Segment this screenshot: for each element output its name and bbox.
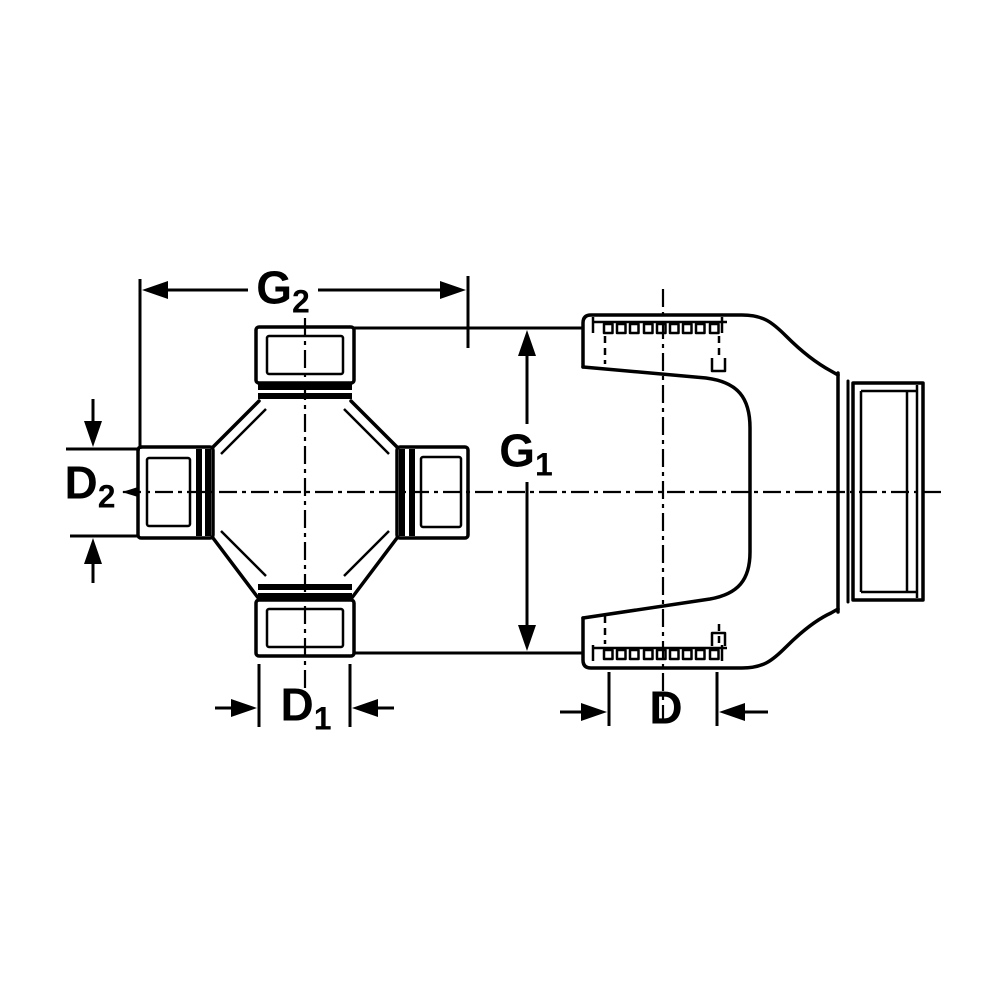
dim-label-d1-sub: 1 xyxy=(314,701,332,737)
dim-label-g1-main: G xyxy=(499,425,535,477)
d1-arrowhead-left xyxy=(352,699,378,717)
dim-label-d: D xyxy=(649,685,682,738)
g2-arrowhead-left xyxy=(142,281,168,299)
d-arrowhead-right xyxy=(581,703,607,721)
bottom-serration-teeth xyxy=(604,650,719,659)
dim-label-g2: G2 xyxy=(256,265,310,318)
top-bore-hook xyxy=(712,358,725,371)
d-arrowhead-left xyxy=(719,703,745,721)
body-inner-chamfer-bottom-right xyxy=(344,531,389,576)
d1-arrowhead-right xyxy=(231,699,257,717)
dim-label-d1: D1 xyxy=(280,682,331,735)
body-inner-chamfer-bottom-left xyxy=(221,531,266,576)
ujoint-technical-drawing: G2 G1 D2 D1 D xyxy=(0,0,1000,1000)
ujoint-drawing-svg xyxy=(0,0,1000,1000)
dim-label-g2-main: G xyxy=(256,262,292,314)
dim-label-d-main: D xyxy=(649,682,682,734)
dim-label-g2-sub: 2 xyxy=(292,284,310,320)
yoke-top-ear-serrations xyxy=(593,317,727,371)
d2-arrowhead-down xyxy=(84,421,102,447)
g2-arrowhead-right xyxy=(440,281,466,299)
top-serration-teeth xyxy=(604,324,719,333)
g1-arrowhead-up xyxy=(518,330,536,356)
dim-label-g1: G1 xyxy=(499,428,553,481)
dim-label-d1-main: D xyxy=(280,679,313,731)
dim-label-d2-sub: 2 xyxy=(98,479,116,515)
d2-arrowhead-up xyxy=(84,538,102,564)
g1-arrowhead-down xyxy=(518,625,536,651)
yoke-bottom-ear-serrations xyxy=(593,616,727,661)
centerline-left-arrowhead xyxy=(122,487,138,497)
dim-label-d2-main: D xyxy=(64,457,97,509)
dim-label-d2: D2 xyxy=(64,460,115,513)
dim-label-g1-sub: 1 xyxy=(535,447,553,483)
